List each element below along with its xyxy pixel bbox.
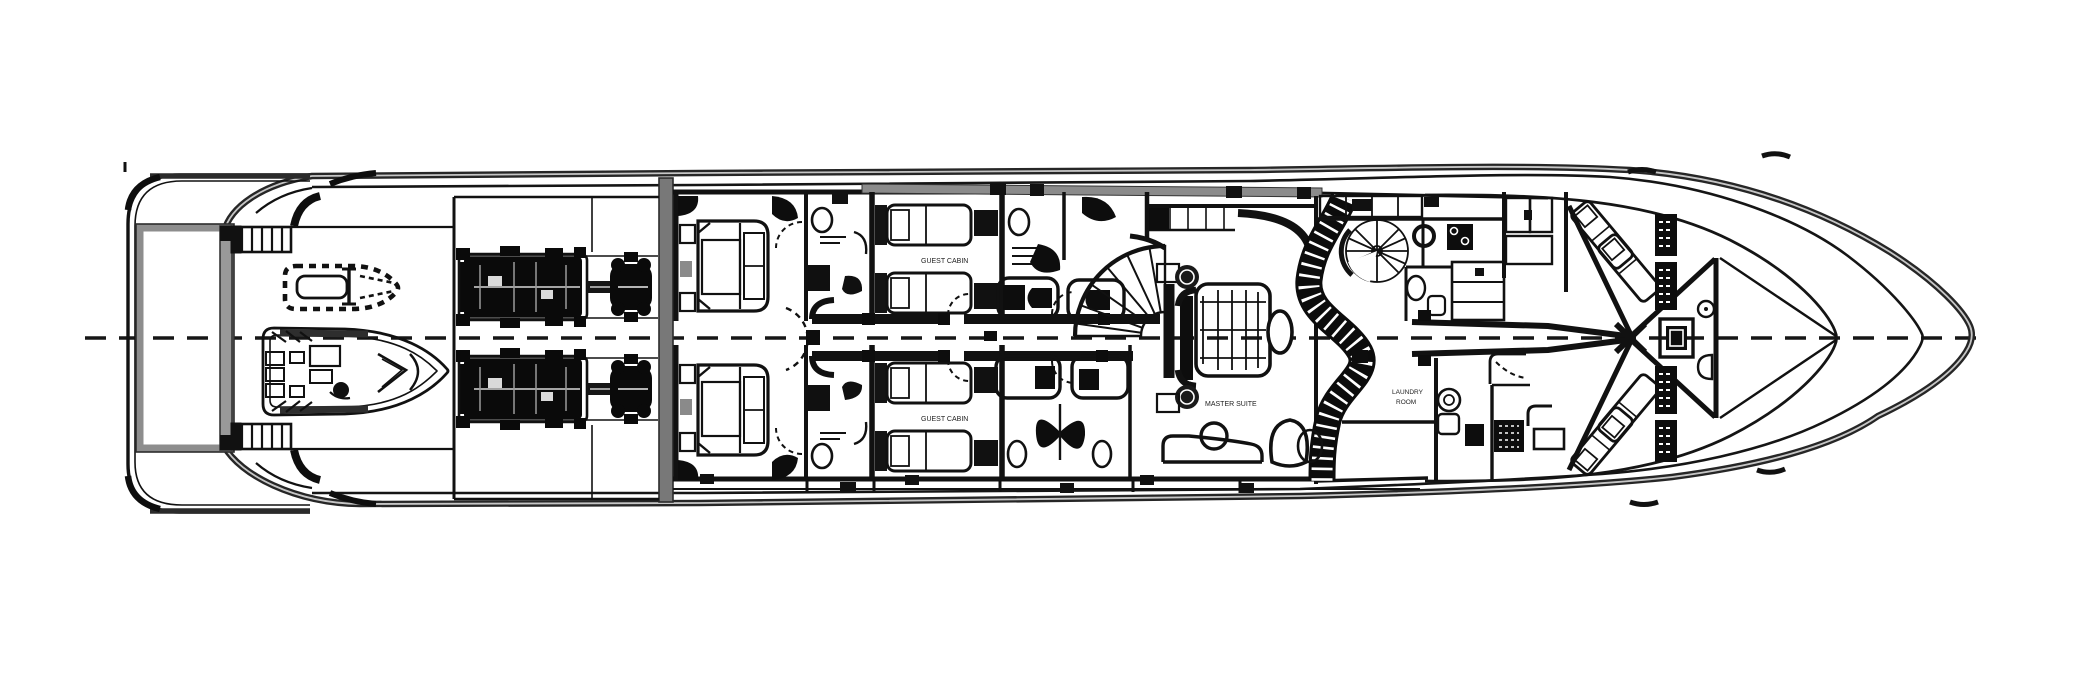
svg-text:LAUNDRY: LAUNDRY: [1392, 389, 1424, 396]
svg-text:GUEST CABIN: GUEST CABIN: [921, 258, 968, 265]
svg-text:GUEST CABIN: GUEST CABIN: [921, 416, 968, 423]
svg-text:ROOM: ROOM: [1396, 399, 1416, 406]
svg-text:MASTER SUITE: MASTER SUITE: [1205, 401, 1257, 408]
